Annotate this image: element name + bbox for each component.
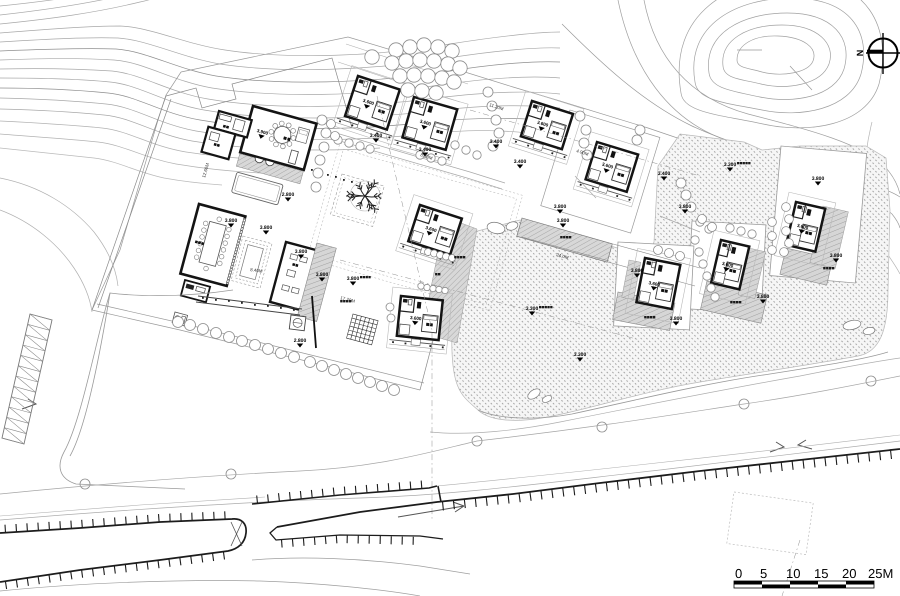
svg-text:3.800: 3.800 (225, 218, 238, 224)
svg-text:3.800: 3.800 (557, 218, 570, 224)
svg-text:3.800: 3.800 (757, 294, 770, 300)
svg-text:0: 0 (735, 566, 742, 581)
svg-text:25M: 25M (868, 566, 893, 581)
svg-text:20: 20 (842, 566, 857, 581)
svg-text:3.400: 3.400 (370, 133, 383, 139)
svg-text:5: 5 (760, 566, 767, 581)
svg-text:3.800: 3.800 (679, 204, 692, 210)
svg-text:3.800: 3.800 (554, 204, 567, 210)
svg-text:3.800: 3.800 (316, 272, 329, 278)
svg-text:3.300: 3.300 (526, 306, 539, 312)
svg-text:3.300: 3.300 (724, 162, 737, 168)
svg-text:3.800: 3.800 (670, 316, 683, 322)
svg-text:3.800: 3.800 (260, 225, 273, 231)
svg-text:3.800: 3.800 (295, 249, 308, 255)
svg-text:N: N (855, 50, 865, 57)
svg-text:3.800: 3.800 (812, 176, 825, 182)
svg-text:3.400: 3.400 (490, 139, 503, 145)
svg-text:3.300: 3.300 (574, 352, 587, 358)
svg-text:2.800: 2.800 (282, 192, 295, 198)
svg-text:3.800: 3.800 (347, 276, 360, 282)
svg-text:3.800: 3.800 (830, 253, 843, 259)
svg-text:2.800: 2.800 (294, 338, 307, 344)
svg-text:3.800: 3.800 (631, 268, 644, 274)
svg-text:3.400: 3.400 (514, 159, 527, 165)
svg-text:15: 15 (814, 566, 829, 581)
svg-text:3.400: 3.400 (658, 171, 671, 177)
svg-text:10: 10 (786, 566, 801, 581)
